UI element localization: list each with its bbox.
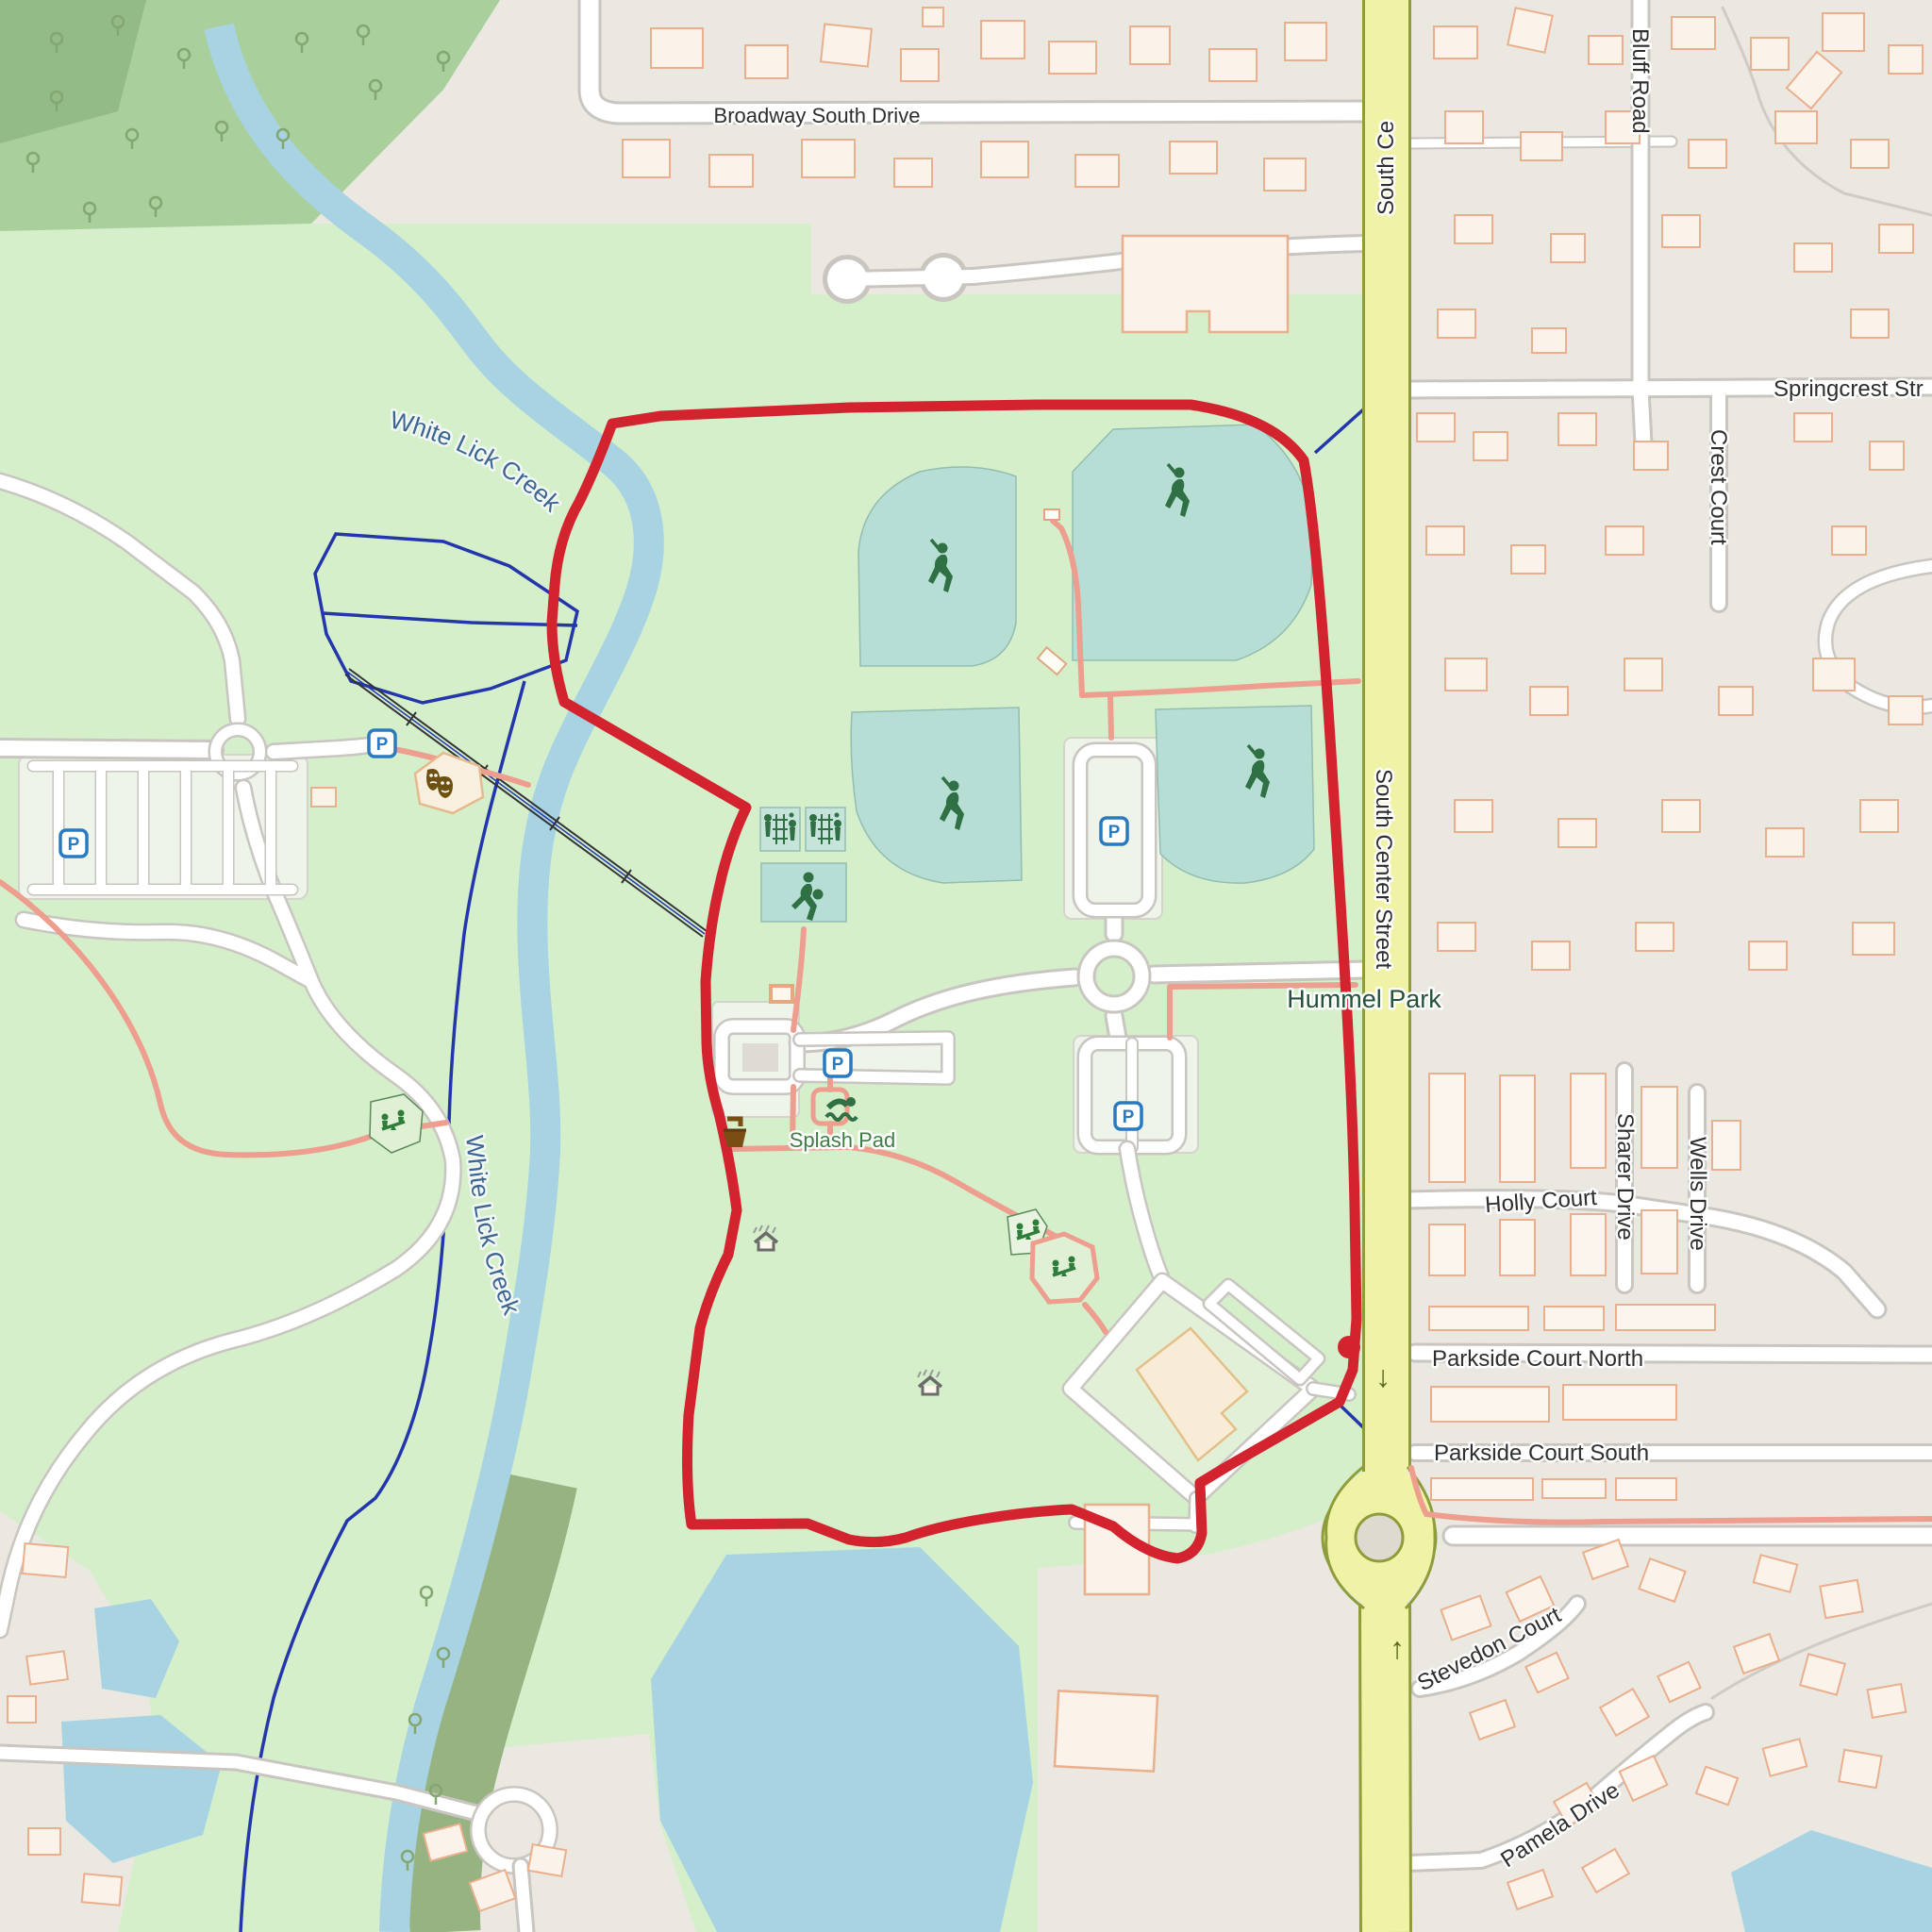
house-building <box>1558 413 1596 445</box>
house-building <box>1507 8 1552 52</box>
house-building <box>1749 941 1787 970</box>
apartment-building <box>1641 1210 1677 1274</box>
house-building <box>1264 158 1306 191</box>
house-building <box>745 45 788 78</box>
house-building <box>1445 658 1487 691</box>
apartment-building <box>1500 1220 1535 1275</box>
route-endpoint <box>1338 1336 1360 1358</box>
house-building <box>1662 800 1700 832</box>
apartment-building <box>1542 1479 1606 1498</box>
house-building <box>8 1696 36 1723</box>
house-building <box>651 28 703 68</box>
house-building <box>1889 696 1923 724</box>
ballfield-southeast <box>1156 706 1314 883</box>
house-building <box>1455 215 1492 243</box>
house-building <box>1049 42 1096 74</box>
road-label-crest-court: Crest Court <box>1706 429 1731 545</box>
house-building <box>981 142 1028 177</box>
house-building <box>82 1874 122 1905</box>
apartment-building <box>1544 1307 1604 1330</box>
house-building <box>1820 1580 1862 1618</box>
house-building <box>1839 1750 1881 1788</box>
house-building <box>1426 526 1464 555</box>
house-building <box>1589 36 1623 64</box>
house-building <box>1823 13 1864 51</box>
parking-icon: P <box>1101 818 1127 844</box>
park-label-hummel-park: Hummel Park <box>1287 985 1441 1013</box>
house-building <box>1751 38 1789 70</box>
parking-letter: P <box>376 735 389 755</box>
road-label-south-center-street-top: South Ce <box>1374 121 1399 215</box>
pond-large <box>651 1547 1033 1932</box>
apartment-building <box>1616 1305 1715 1330</box>
house-building <box>1851 140 1889 168</box>
house-building <box>894 158 932 187</box>
house-building <box>821 24 872 66</box>
house-building <box>311 788 336 807</box>
road-label-broadway-south-drive: Broadway South Drive <box>714 104 921 127</box>
house-building <box>1075 155 1119 187</box>
apartment-building <box>1429 1224 1465 1275</box>
road-label-springcrest-street: Springcrest Str <box>1774 376 1924 402</box>
house-building <box>1636 923 1674 951</box>
house-building <box>1521 132 1562 160</box>
house-building <box>1558 819 1596 847</box>
house-building <box>1794 413 1832 441</box>
house-building <box>1889 45 1923 74</box>
house-building <box>26 1651 68 1684</box>
house-building <box>923 8 943 26</box>
house-building <box>1662 215 1700 247</box>
house-building <box>1532 328 1566 353</box>
house-building <box>981 21 1024 58</box>
house-building <box>1445 111 1483 143</box>
house-building <box>1672 17 1715 49</box>
road-label-parkside-court-south: Parkside Court South <box>1434 1441 1649 1466</box>
oneway-arrow-icon: ↑ <box>1390 1631 1405 1665</box>
house-building <box>1766 828 1804 857</box>
house-building <box>1474 432 1507 460</box>
house-building <box>1511 545 1545 574</box>
house-building <box>1530 687 1568 715</box>
road-label-sharer-drive: Sharer Drive <box>1612 1113 1638 1241</box>
house-building <box>1209 49 1257 81</box>
parking-icon: P <box>824 1050 851 1076</box>
parking-icon: P <box>1115 1103 1141 1129</box>
house-building <box>1438 309 1475 338</box>
map-canvas[interactable]: ↓ ↑ Broadway South Drive South Ce South … <box>0 0 1932 1932</box>
house-building <box>1455 800 1492 832</box>
house-building <box>1170 142 1217 174</box>
house-building <box>1130 26 1170 64</box>
ballfield-northeast <box>1073 425 1313 660</box>
house-building <box>1285 23 1326 60</box>
parking-icon: P <box>369 730 395 757</box>
house-building <box>1870 441 1904 470</box>
house-building <box>1719 687 1753 715</box>
apartment-building <box>1571 1214 1606 1275</box>
parking-letter: P <box>68 835 80 855</box>
house-building <box>1417 413 1455 441</box>
apartment-building <box>1616 1478 1676 1500</box>
roundabout-island <box>1356 1514 1403 1561</box>
parking-letter: P <box>1108 823 1121 842</box>
house-building <box>1868 1684 1907 1718</box>
house-building <box>1551 234 1585 262</box>
house-building <box>1689 140 1726 168</box>
apartment-building <box>1429 1307 1528 1330</box>
apartment-building <box>1563 1385 1676 1420</box>
apartment-building <box>1431 1387 1549 1422</box>
apartment-building <box>1571 1074 1606 1168</box>
house-building <box>1532 941 1570 970</box>
house-building <box>901 49 939 81</box>
house-building <box>1860 800 1898 832</box>
house-building <box>1438 923 1475 951</box>
house-building <box>1794 243 1832 272</box>
apartment-building <box>1431 1478 1533 1500</box>
house-building <box>1832 526 1866 555</box>
apartment-building <box>1429 1074 1465 1182</box>
parking-icon: P <box>60 830 87 857</box>
house-building <box>1775 111 1817 143</box>
apartment-building <box>1712 1121 1740 1170</box>
house-building <box>1879 225 1913 253</box>
parking-letter: P <box>1123 1108 1135 1127</box>
house-building <box>1624 658 1662 691</box>
road-label-bluff-road: Bluff Road <box>1627 28 1653 134</box>
apartment-building <box>1500 1075 1535 1182</box>
house-building <box>23 1543 69 1577</box>
house-building <box>1634 441 1668 470</box>
house-building <box>1606 526 1643 555</box>
road-label-south-center-street: South Center Street <box>1371 769 1396 969</box>
playground-area <box>1032 1234 1097 1302</box>
house-building <box>1434 26 1477 58</box>
oneway-arrow-icon: ↓ <box>1375 1359 1391 1393</box>
poi-label-splash-pad: Splash Pad <box>790 1128 896 1152</box>
road-label-parkside-court-north: Parkside Court North <box>1432 1346 1643 1372</box>
house-building <box>1851 309 1889 338</box>
road-label-wells-drive: Wells Drive <box>1685 1137 1710 1251</box>
house-building <box>28 1828 60 1855</box>
house-building <box>1813 658 1855 691</box>
house-building <box>1853 923 1894 955</box>
house-building <box>528 1844 566 1876</box>
house-building <box>623 140 670 177</box>
parking-letter: P <box>832 1055 844 1074</box>
house-building <box>802 140 855 177</box>
house-building <box>709 155 753 187</box>
apartment-building <box>1641 1087 1677 1168</box>
